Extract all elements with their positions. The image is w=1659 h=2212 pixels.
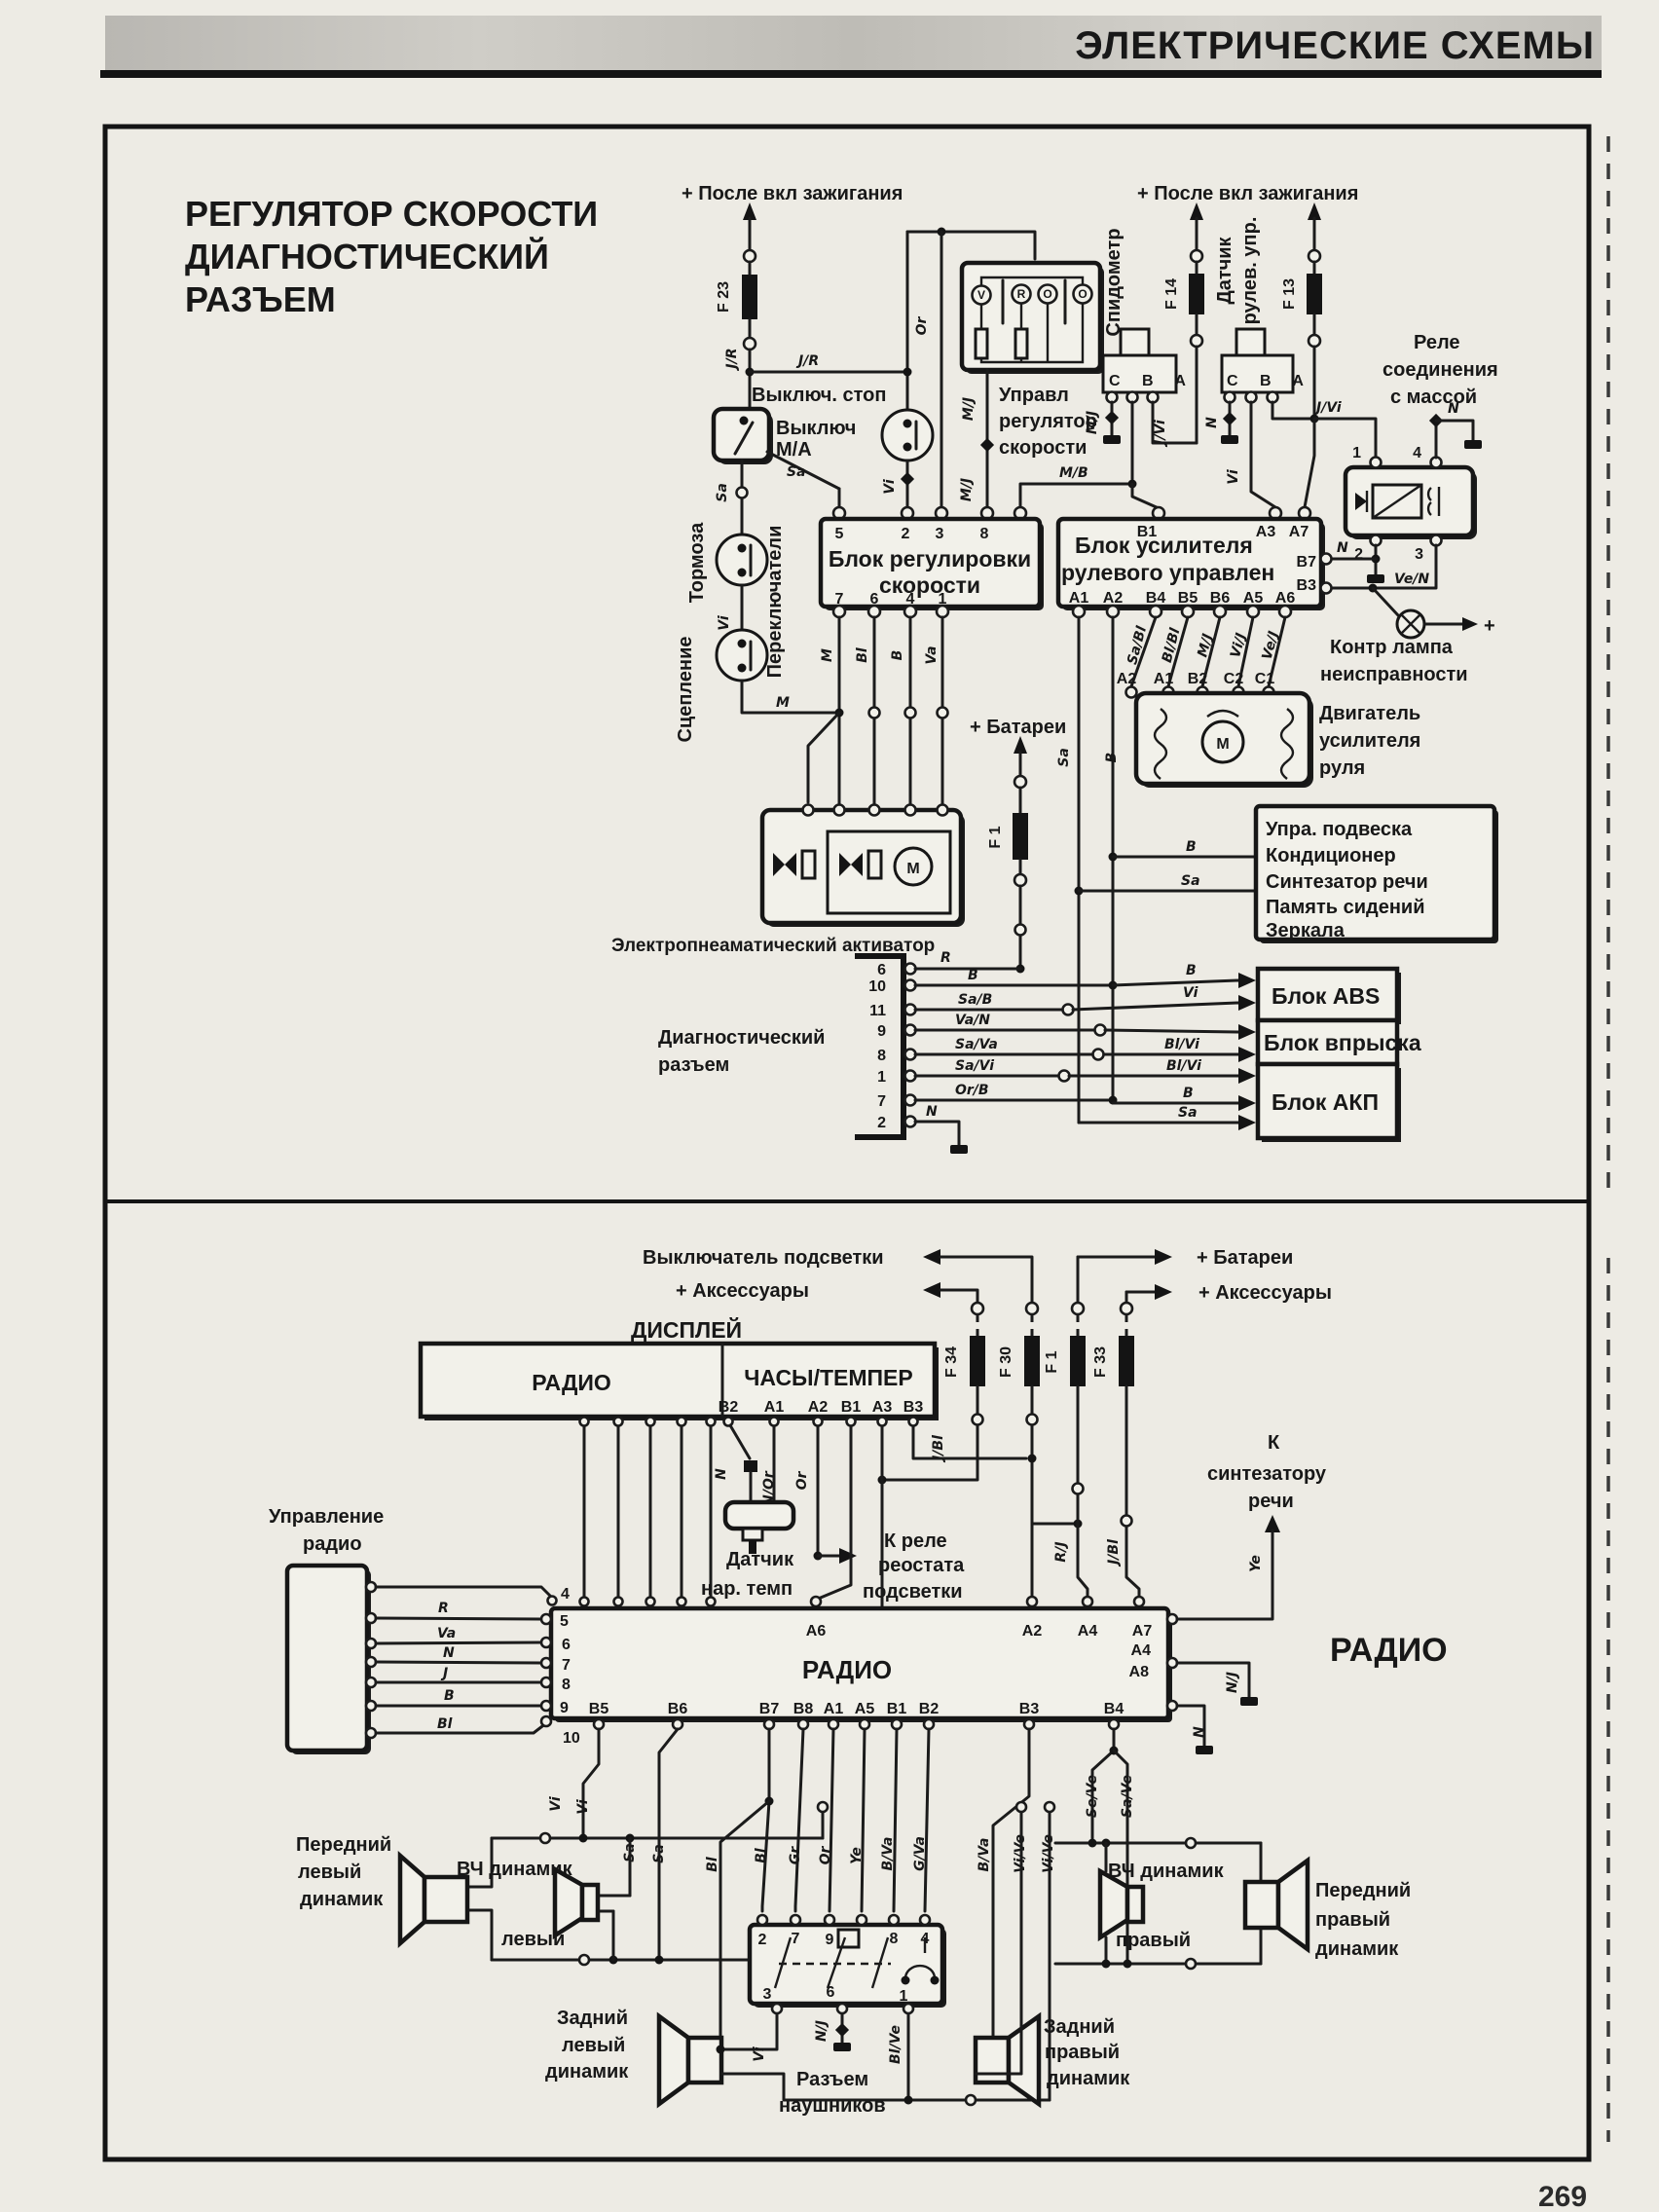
radio-pin-b6: B6 [668,1701,688,1717]
radio-pin-a6: A6 [806,1623,827,1640]
fr-label-3: динамик [1315,1938,1399,1960]
steer-block-label-2: рулевого управлен [1061,560,1274,585]
ground-diag [950,1145,968,1154]
hp-pin-2: 2 [758,1932,767,1948]
wire-nj2: N/J [814,2020,829,2042]
wire-bl-pin6: Bl [855,647,870,663]
wire-gr: Gr [788,1846,803,1864]
ground-hp-6 [833,2043,851,2051]
radio-pin-6: 6 [562,1637,571,1653]
wire-n2-diag: N [926,1104,938,1120]
pneumatic-activator: М Электропнеаматический активатор [611,805,965,957]
wire-van9: Va/N [955,1013,990,1028]
wire-savi1: Sa/Vi [955,1058,994,1074]
radio-feeders: Выключатель подсветки + Аксессуары F 34 … [643,1247,1332,1597]
hp-pin-1: 1 [900,1988,908,2005]
acc-right-label: + Аксессуары [1198,1282,1332,1304]
relay-label-1: Реле [1414,332,1460,353]
wire-sa-a1: Sa [1056,748,1072,767]
wire-vi-abs: Vi [1183,985,1198,1001]
steer-pin-b5: B5 [1178,590,1198,607]
rear-left-speaker: Задний левый динамик [545,2008,721,2104]
wire-bl2: Bl [754,1848,769,1863]
cruise-label-3: скорости [999,437,1087,459]
wire-b-akp: B [1183,1086,1194,1101]
ctrl-wire-va: Va [437,1626,456,1641]
aux-line-5: Зеркала [1266,920,1346,941]
synth-label-2: синтезатору [1207,1463,1327,1485]
speed-regulation-block: 5 2 3 8 Блок регулировки скорости 7 6 4 … [821,507,1044,617]
diag-pin-1: 1 [877,1069,886,1086]
hp-pin-8: 8 [890,1931,899,1947]
radio-pin-b3: B3 [1019,1701,1040,1717]
radio-pin-a7: A7 [1132,1623,1153,1640]
reg-pin-5: 5 [835,526,844,542]
ground-relay-2 [1367,574,1384,583]
radio-big-label: РАДИО [1330,1632,1448,1669]
rr-label-3: динамик [1047,2068,1130,2089]
steer-pin-a7: A7 [1289,524,1309,540]
wire-n-sens: N [714,1468,729,1480]
rl-label-3: динамик [545,2061,629,2083]
fr-label-2: правый [1315,1909,1390,1931]
wire-jvi-speedo: J/Vi [1153,420,1168,448]
wire-rj: R/J [1053,1541,1069,1562]
stop-switch-label: Выключ. стоп [752,385,886,406]
hp-label-1: Разъем [796,2069,868,2090]
akp-box-label: Блок АКП [1272,1089,1379,1115]
rr-label-2: правый [1045,2042,1120,2063]
rr-label-1: Задний [1044,2016,1115,2038]
radio-pin-a1: A1 [824,1701,844,1717]
radio-pin-10: 10 [563,1730,580,1747]
wire-sa-akp: Sa [1178,1105,1198,1121]
aux-line-1: Упра. подвеска [1266,819,1413,840]
cruise-btn-r: R [1017,287,1026,301]
disp-pin-b2: B2 [719,1399,739,1416]
wire-jr-h: J/R [795,353,819,369]
aux-line-4: Память сидений [1266,897,1425,918]
fuse-f14-label: F 14 [1163,278,1180,310]
clutch-switch [717,630,767,681]
brake-switch [717,535,767,585]
temp-sensor-label-2: нар. темп [701,1578,793,1600]
wire-mj-1: M/J [961,397,977,421]
ctrl-wire-b: B [444,1688,455,1704]
motor-pin-c1: C1 [1255,671,1275,687]
d1-title-2: ДИАГНОСТИЧЕСКИЙ [185,236,549,276]
hp-pin-9: 9 [826,1932,834,1948]
reg-block-label-2: скорости [879,572,980,598]
wire-vi-sensor: Vi [1226,469,1241,485]
wire-sa-aux: Sa [1181,873,1200,889]
manual-page: ЭЛЕКТРИЧЕСКИЕ СХЕМЫ 269 РЕГУЛЯТОР СКОРОС… [0,0,1659,2212]
fuse-f34-label: F 34 [943,1346,960,1378]
radio-pin-5: 5 [560,1613,569,1630]
motor-pin-b2: B2 [1188,671,1208,687]
disp-pin-a2: A2 [808,1399,829,1416]
steering-amplifier-block: B1 A3 A7 Блок усилителя рулевого управле… [1058,507,1332,617]
diag-pin-9: 9 [877,1023,886,1040]
fuse-f30 [1024,1336,1040,1386]
fuse-f14 [1189,274,1204,314]
motor-label-1: Двигатель [1319,703,1420,724]
wire-b10: B [968,968,978,983]
radio-box-label: РАДИО [802,1655,892,1684]
reg-pin-3: 3 [936,526,944,542]
reg-pin-8: 8 [980,526,989,542]
abs-box-label: Блок ABS [1272,983,1380,1009]
diag-pin-7: 7 [877,1093,886,1110]
ctrl-wire-j: J [440,1666,448,1681]
radio-ctrl-label-1: Управление [269,1506,384,1528]
speedo-pins-cba: C B A [1109,373,1195,389]
synth-label-3: речи [1248,1491,1294,1512]
radio-ctrl-label-2: радио [303,1533,362,1555]
display-radio-label: РАДИО [532,1370,611,1395]
ground-radio-a8 [1240,1697,1258,1706]
wire-blvi2: Bl/Vi [1166,1058,1201,1074]
motor-pin-a2: A2 [1117,671,1137,687]
steer-pin-a6: A6 [1275,590,1296,607]
hp-pin-3: 3 [763,1986,772,2003]
diagram1-title: РЕГУЛЯТОР СКОРОСТИ ДИАГНОСТИЧЕСКИЙ РАЗЪЕ… [185,194,598,319]
wire-bl1: Bl [705,1857,720,1872]
relay-pin-4: 4 [1413,445,1421,461]
wire-jr-v: J/R [724,348,740,371]
wire-vi2: Vi [575,1799,591,1815]
radio-pin-4: 4 [561,1586,570,1603]
cruise-btn-o2: O [1078,287,1087,301]
fl-label-2: левый [298,1862,361,1883]
radio-pin-a8: A8 [1129,1664,1150,1680]
rheostat-label-2: реостата [878,1555,965,1576]
ecu-boxes: B Vi Bl/Vi Bl/Vi B Sa Блок ABS Блок впры… [1069,963,1421,1142]
aux-line-2: Кондиционер [1266,845,1396,866]
diag-pin-2: 2 [877,1115,886,1131]
cruise-label-2: регулятор [999,411,1097,432]
ma-switch-label-2: М/А [776,439,812,461]
wire-nj1: N/J [1225,1672,1240,1693]
radio-pin-8: 8 [562,1677,571,1693]
wire-vi1: Vi [548,1796,564,1812]
sensor-pins-cba: C B A [1227,373,1312,389]
wire-mj-speedo: M/J [1085,411,1100,434]
rheostat-label-1: К реле [884,1530,947,1552]
wire-va-pin1: Va [924,645,940,664]
cruise-btn-o1: O [1043,287,1051,301]
radio-right-wires: К синтезатору речи Ye N/J N [1177,1432,1327,1754]
wire-vi-stop: Vi [882,479,898,495]
wire-mb: М/В [1059,465,1088,481]
d1-title-3: РАЗЪЕМ [185,279,336,319]
synth-label-1: К [1268,1432,1280,1454]
warning-lamp: + Контр лампа неисправности [1320,584,1495,686]
fr-label-1: Передний [1315,1880,1411,1901]
wire-sab11: Sa/B [958,992,992,1008]
wire-m-pin7: M [820,648,835,662]
relay-pin-1: 1 [1352,445,1361,461]
hp-pin-7: 7 [792,1931,800,1947]
fuse-f1b [1070,1336,1086,1386]
fuse-f1 [1013,813,1028,860]
lamp-label-1: Контр лампа [1330,637,1454,658]
battery-f1: + Батареи F 1 [970,717,1066,974]
activator-wires: M Bl B Va [808,617,948,804]
wire-r6: R [940,950,951,966]
reg-block-label-1: Блок регулировки [829,546,1031,571]
page-number: 269 [1538,2181,1587,2212]
ground-sensor-c [1221,435,1238,444]
acc-left-label: + Аксессуары [676,1280,809,1302]
disp-pin-a3: A3 [872,1399,893,1416]
tweeter-right: ВЧ динамик правый [1100,1861,1225,1951]
wire-n-relay4: N [1448,401,1459,417]
steer-pin-b6: B6 [1210,590,1231,607]
radio-unit: РАДИО РАДИО 4 5 6 7 8 9 10 A6 A2 A4 A7 A… [541,1586,1448,1747]
wire-ye2: Ye [849,1847,865,1864]
radio-pin-7: 7 [562,1657,571,1674]
backlight-label: Выключатель подсветки [643,1247,884,1269]
radio-pin-b5: B5 [589,1701,609,1717]
wire-sa-diagonal: Sa [787,464,806,480]
wire-bva2: B/Va [977,1838,992,1872]
fuse-f33 [1119,1336,1134,1386]
disp-pin-b1: B1 [841,1399,862,1416]
wire-sa-v: Sa [715,483,730,502]
hp-label-2: наушников [779,2095,886,2117]
wire-n-b4: N [1192,1726,1207,1738]
inj-box-label: Блок впрыска [1264,1030,1421,1055]
disp-pin-a1: A1 [764,1399,785,1416]
motor-label-3: руля [1319,757,1365,779]
diag-pin-8: 8 [877,1048,886,1064]
steer-pin-b3: B3 [1297,577,1317,594]
relay-pin-3: 3 [1415,546,1423,563]
steer-pin-b7: B7 [1297,554,1317,571]
wire-mj4: M/J [1195,632,1216,659]
fl-label-3: динамик [300,1889,384,1910]
diag-label-2: разъем [658,1054,729,1076]
wire-vi3: Vi [752,2046,767,2062]
wire-b-aux: B [1186,839,1197,855]
ignition-label-left: + После вкл зажигания [682,183,903,204]
wire-mb-run [1020,484,1132,507]
radio-pin-b8: B8 [793,1701,814,1717]
cruise-label-1: Управл [999,385,1069,406]
diag-pin-10: 10 [868,978,886,995]
wire-save: Sa/Ve [1120,1775,1135,1818]
ctrl-wire-bl: Bl [437,1716,453,1732]
ma-switch-label-1: Выключ [776,418,856,439]
wire-n-relay2: N [1337,540,1348,556]
wire-b-a2: B [1104,753,1120,763]
wire-ven: Ve/N [1394,571,1429,587]
cruise-btn-v: V [977,288,985,302]
radio-pin-b4: B4 [1104,1701,1124,1717]
display-unit: ДИСПЛЕЙ РАДИО ЧАСЫ/ТЕМПЕР B2 A1 A2 B1 A3… [421,1316,939,1606]
fuse-f13-label: F 13 [1281,278,1298,310]
switches-label: Переключатели [764,526,786,679]
motor-label-2: усилителя [1319,730,1420,752]
brakes-label: Тормоза [686,522,708,603]
relay-label-3: с массой [1390,387,1477,408]
rheostat-label-3: подсветки [863,1581,963,1603]
ground-speedo-c [1103,435,1121,444]
schematic-canvas: ЭЛЕКТРИЧЕСКИЕ СХЕМЫ 269 РЕГУЛЯТОР СКОРОС… [0,0,1659,2212]
front-left-speaker: Передний левый динамик [296,1834,467,1943]
fuse-f34 [970,1336,985,1386]
lamp-label-2: неисправности [1320,664,1468,685]
motor-pin-a1: A1 [1154,671,1174,687]
sensor-label-2: рулев. упр. [1239,217,1261,325]
radio-pin-a4: A4 [1078,1623,1098,1640]
fuse-f1-label: F 1 [987,826,1004,848]
sensor-label-1: Датчик [1214,236,1235,304]
ground-relay: Реле соединения с массой 1 4 2 3 N N Ve/… [1332,332,1498,588]
display-clock-label: ЧАСЫ/ТЕМПЕР [744,1365,912,1390]
stop-switch-chain: + После вкл зажигания F 23 J/R J/R Выклю… [675,183,907,743]
steer-pin-b4: B4 [1146,590,1166,607]
wire-jbl2: J/Bl [1106,1539,1122,1567]
wire-n-sensor: N [1204,417,1220,428]
radio-pin-b2: B2 [919,1701,940,1717]
temp-sensor-label-1: Датчик [726,1549,794,1570]
wire-m-h: M [776,695,790,711]
speedometer-label: Спидометр [1103,228,1124,336]
wire-or3: Or [818,1846,833,1865]
diagram-cruise-control: РЕГУЛЯТОР СКОРОСТИ ДИАГНОСТИЧЕСКИЙ РАЗЪЕ… [185,183,1498,1154]
fuse-f13 [1307,274,1322,314]
steer-pin-a5: A5 [1243,590,1264,607]
wire-b-pin4: B [890,650,905,661]
lamp-plus: + [1484,615,1495,637]
wire-bva1: B/Va [880,1837,896,1871]
ignition-label-right: + После вкл зажигания [1137,183,1358,204]
battery-label: + Батареи [970,717,1066,738]
wire-or: Or [914,316,930,336]
steering-sensor-connector: Датчик рулев. упр. C B A N Vi F 13 J/Vi [1204,203,1376,507]
ma-switch [714,409,769,461]
twl-label-2: левый [501,1929,565,1950]
hp-pin-6: 6 [827,1984,835,2001]
page-title: ЭЛЕКТРИЧЕСКИЕ СХЕМЫ [1075,24,1595,67]
relay-label-2: соединения [1382,359,1498,381]
fuse-f23 [742,275,757,319]
steer-pin-a3: A3 [1256,524,1276,540]
radio-pin-a5: A5 [855,1701,875,1717]
ctrl-wire-n: N [443,1645,455,1661]
diag-label-1: Диагностический [658,1027,825,1049]
headphone-connector: 2 7 9 5 8 4 3 6 1 Разъем наушников Vi N/… [717,1915,1051,2117]
reg-pin-2: 2 [902,526,910,542]
wire-sa2: Sa [651,1844,667,1863]
wire-sava8: Sa/Va [955,1037,998,1052]
wire-blvi1: Bl/Vi [1164,1037,1199,1052]
radio-pin-9: 9 [560,1700,569,1716]
fuse-f30-label: F 30 [998,1346,1014,1378]
radio-pin-b7: B7 [759,1701,780,1717]
tweeter-left: ВЧ динамик левый [457,1859,598,1950]
wire-mj-2: M/J [959,478,975,501]
steer-motor-m: М [1216,736,1229,753]
fl-label-1: Передний [296,1834,391,1856]
diag-pin-11: 11 [869,1003,886,1019]
steer-pin-a1b: A1 [1069,590,1089,607]
radio-control: Управление радио R Va N J B Bl [269,1506,552,1754]
fuse-f1b-label: F 1 [1044,1350,1060,1373]
wire-vej: Ve/J [1260,630,1282,662]
ctrl-wire-r: R [438,1601,449,1616]
ground-relay-4 [1464,440,1482,449]
aux-line-3: Синтезатор речи [1266,871,1428,893]
d1-title-1: РЕГУЛЯТОР СКОРОСТИ [185,194,598,234]
wire-vi-v: Vi [717,615,732,631]
diagram-radio: Выключатель подсветки + Аксессуары F 34 … [269,1247,1448,2117]
disp-pin-b3: B3 [903,1399,924,1416]
steer-block-label-1: Блок усилителя [1075,533,1253,558]
display-title: ДИСПЛЕЙ [631,1316,742,1343]
rl-label-2: левый [562,2035,625,2056]
clutch-label: Сцепление [675,636,696,742]
activator-label: Электропнеаматический активатор [611,936,935,956]
wire-orb7: Or/B [955,1083,989,1098]
diag-pin-6: 6 [877,962,886,978]
rl-label-1: Задний [557,2008,628,2029]
battery2-label: + Батареи [1197,1247,1293,1269]
twr-label-1: ВЧ динамик [1108,1861,1225,1882]
wire-jvi-relay: J/Vi [1313,400,1342,416]
page-header: ЭЛЕКТРИЧЕСКИЕ СХЕМЫ [100,16,1602,78]
diagnostic-connector: Диагностический разъем 6 10 11 9 8 1 7 2… [658,950,1118,1154]
diag-pins: 6 10 11 9 8 1 7 2 [868,962,886,1131]
radio-pin-b1: B1 [887,1701,907,1717]
wire-gva: G/Va [912,1836,928,1871]
fuse-f23-label: F 23 [716,281,732,313]
wire-ye: Ye [1248,1555,1264,1572]
wire-blve: Bl/Ve [888,2025,903,2064]
wire-b-abs: B [1186,963,1197,978]
steer-pin-a2b: A2 [1103,590,1124,607]
motor-pin-c2: C2 [1224,671,1244,687]
fuse-f33-label: F 33 [1092,1346,1109,1378]
wire-or2: Or [794,1471,810,1491]
diag-pin-circles [905,964,916,1127]
radio-pin-a4r: A4 [1131,1642,1152,1659]
twr-label-2: правый [1116,1930,1191,1951]
radio-pin-a2: A2 [1022,1623,1043,1640]
wire-seve: Se/Ve [1085,1775,1100,1818]
activator-motor-m: М [906,861,919,877]
ground-radio-b4 [1196,1746,1213,1754]
